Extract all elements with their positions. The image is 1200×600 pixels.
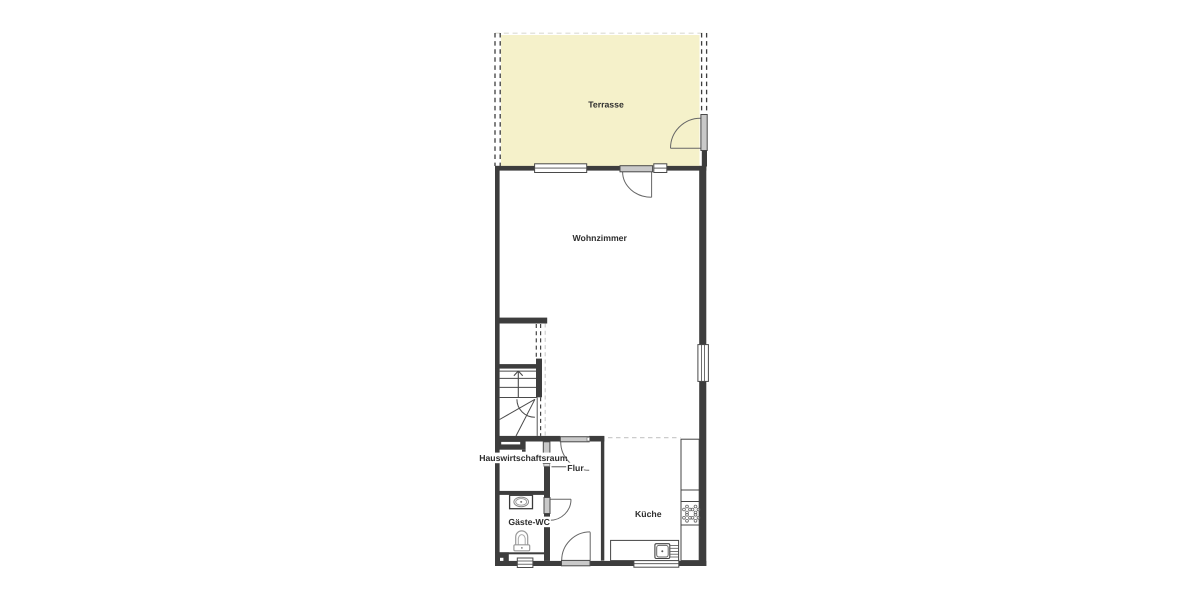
svg-text:Flur: Flur <box>567 463 584 473</box>
svg-text:Hauswirtschaftsraum: Hauswirtschaftsraum <box>479 453 568 463</box>
svg-text:Wohnzimmer: Wohnzimmer <box>573 233 628 243</box>
svg-text:Küche: Küche <box>635 509 662 519</box>
svg-text:Gäste-WC: Gäste-WC <box>508 517 550 527</box>
svg-text:Terrasse: Terrasse <box>588 100 624 110</box>
